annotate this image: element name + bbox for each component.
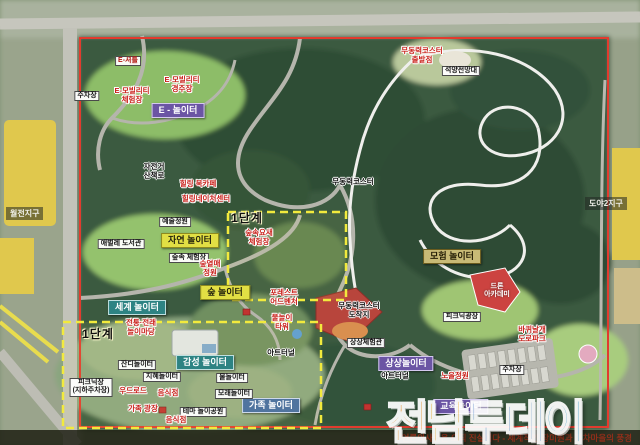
label-forest-adventure: 포레스트 어드벤처 [270,288,298,306]
label-sand-play: 모래놀이터 [215,389,253,399]
label-forest-fruit-garden: 숲열매 정원 [200,259,221,277]
label-wheel-road-park: 바퀴날개 도로파크 [518,325,546,343]
label-family-square: 가족 광장 [128,404,158,413]
label-wood-road: 우드로드 [119,386,147,395]
zone-label-forest: 숲 놀이터 [200,285,250,300]
district-label-east: 도야2지구 [585,197,627,210]
label-sunset-observatory: 석양전망대 [442,66,480,76]
zone-label-world: 세계 놀이터 [108,300,166,315]
label-wisdom-playground: 지혜놀이터 [143,372,181,382]
label-coaster-start: 무동력코스터 출발점 [401,46,442,64]
phase1-label-center: 1단계 [231,211,263,225]
label-water-tower: 물놀이 타워 [272,313,293,331]
park-masterplan-map: E - 놀이터 자연 놀이터 숲 놀이터 세계 놀이터 감성 놀이터 모험 놀이… [0,0,640,445]
zone-label-adventure: 모험 놀이터 [423,249,481,264]
phase1-label-southwest: 1단계 [82,327,114,341]
watermark-char: 투 [465,396,504,445]
label-e-mobility-race: E-모빌리티 경주장 [164,75,199,93]
label-sunset-garden: 노을정원 [441,371,469,380]
label-coaster-track: 무동력코스터 [332,177,373,186]
label-art-tunnel-east: 아트터널 [381,371,409,380]
label-parking-west: 주차장 [74,91,99,101]
label-bike-trail: 자전거 산책로 [144,162,165,180]
label-grass-playground: 잔디놀이터 [118,360,156,370]
label-e-mobility-experience: E-모빌리티 체험장 [114,86,149,104]
label-picnic-square: 피크닉광장 [443,312,481,322]
label-art-garden: 예술정원 [159,217,191,227]
rose-garden-circle [579,345,597,363]
zone-label-emotion: 감성 놀이터 [176,355,234,370]
label-healing-book-cafe: 힐링 북카페 [180,179,217,188]
label-traditional-play: 전통·전래 놀이마당 [126,318,156,336]
label-picnic-underground-parking: 피크닉장 (지하주차장) [70,378,113,397]
jeonnam-today-watermark: 전남투데이 [386,384,582,445]
label-parking-east: 주차장 [499,365,524,375]
watermark-char: 전 [386,396,425,445]
watermark-char: 이 [543,396,582,445]
label-coaster-finish: 무동력코스터 도착지 [338,301,379,319]
label-forest-fortress: 숲속요새 체험장 [245,228,273,246]
district-label-west: 월전지구 [6,207,43,220]
label-restaurant-south: 음식점 [166,415,187,424]
label-water-play: 물놀이터 [216,373,248,383]
label-art-tunnel-west: 아트터널 [267,348,295,357]
label-theme-park: 테마 놀이공원 [180,407,227,417]
label-caterpillar-library: 애벌레 도서관 [98,239,145,249]
label-restaurant-north: 음식점 [158,388,179,397]
zone-label-e: E - 놀이터 [152,103,205,118]
watermark-char: 남 [425,396,464,445]
label-drone-academy: 드론 아카데미 [484,283,510,300]
watermark-char: 데 [504,396,543,445]
label-healing-nature-center: 힐링네이처센터 [182,194,230,203]
label-imagination-hall: 상상체험관 [347,338,385,348]
zone-label-family: 가족 놀이터 [242,398,300,413]
zone-label-nature: 자연 놀이터 [161,233,219,248]
label-e-shuttle: E-셔틀 [115,56,141,66]
zone-label-imagination: 상상놀이터 [378,356,433,371]
